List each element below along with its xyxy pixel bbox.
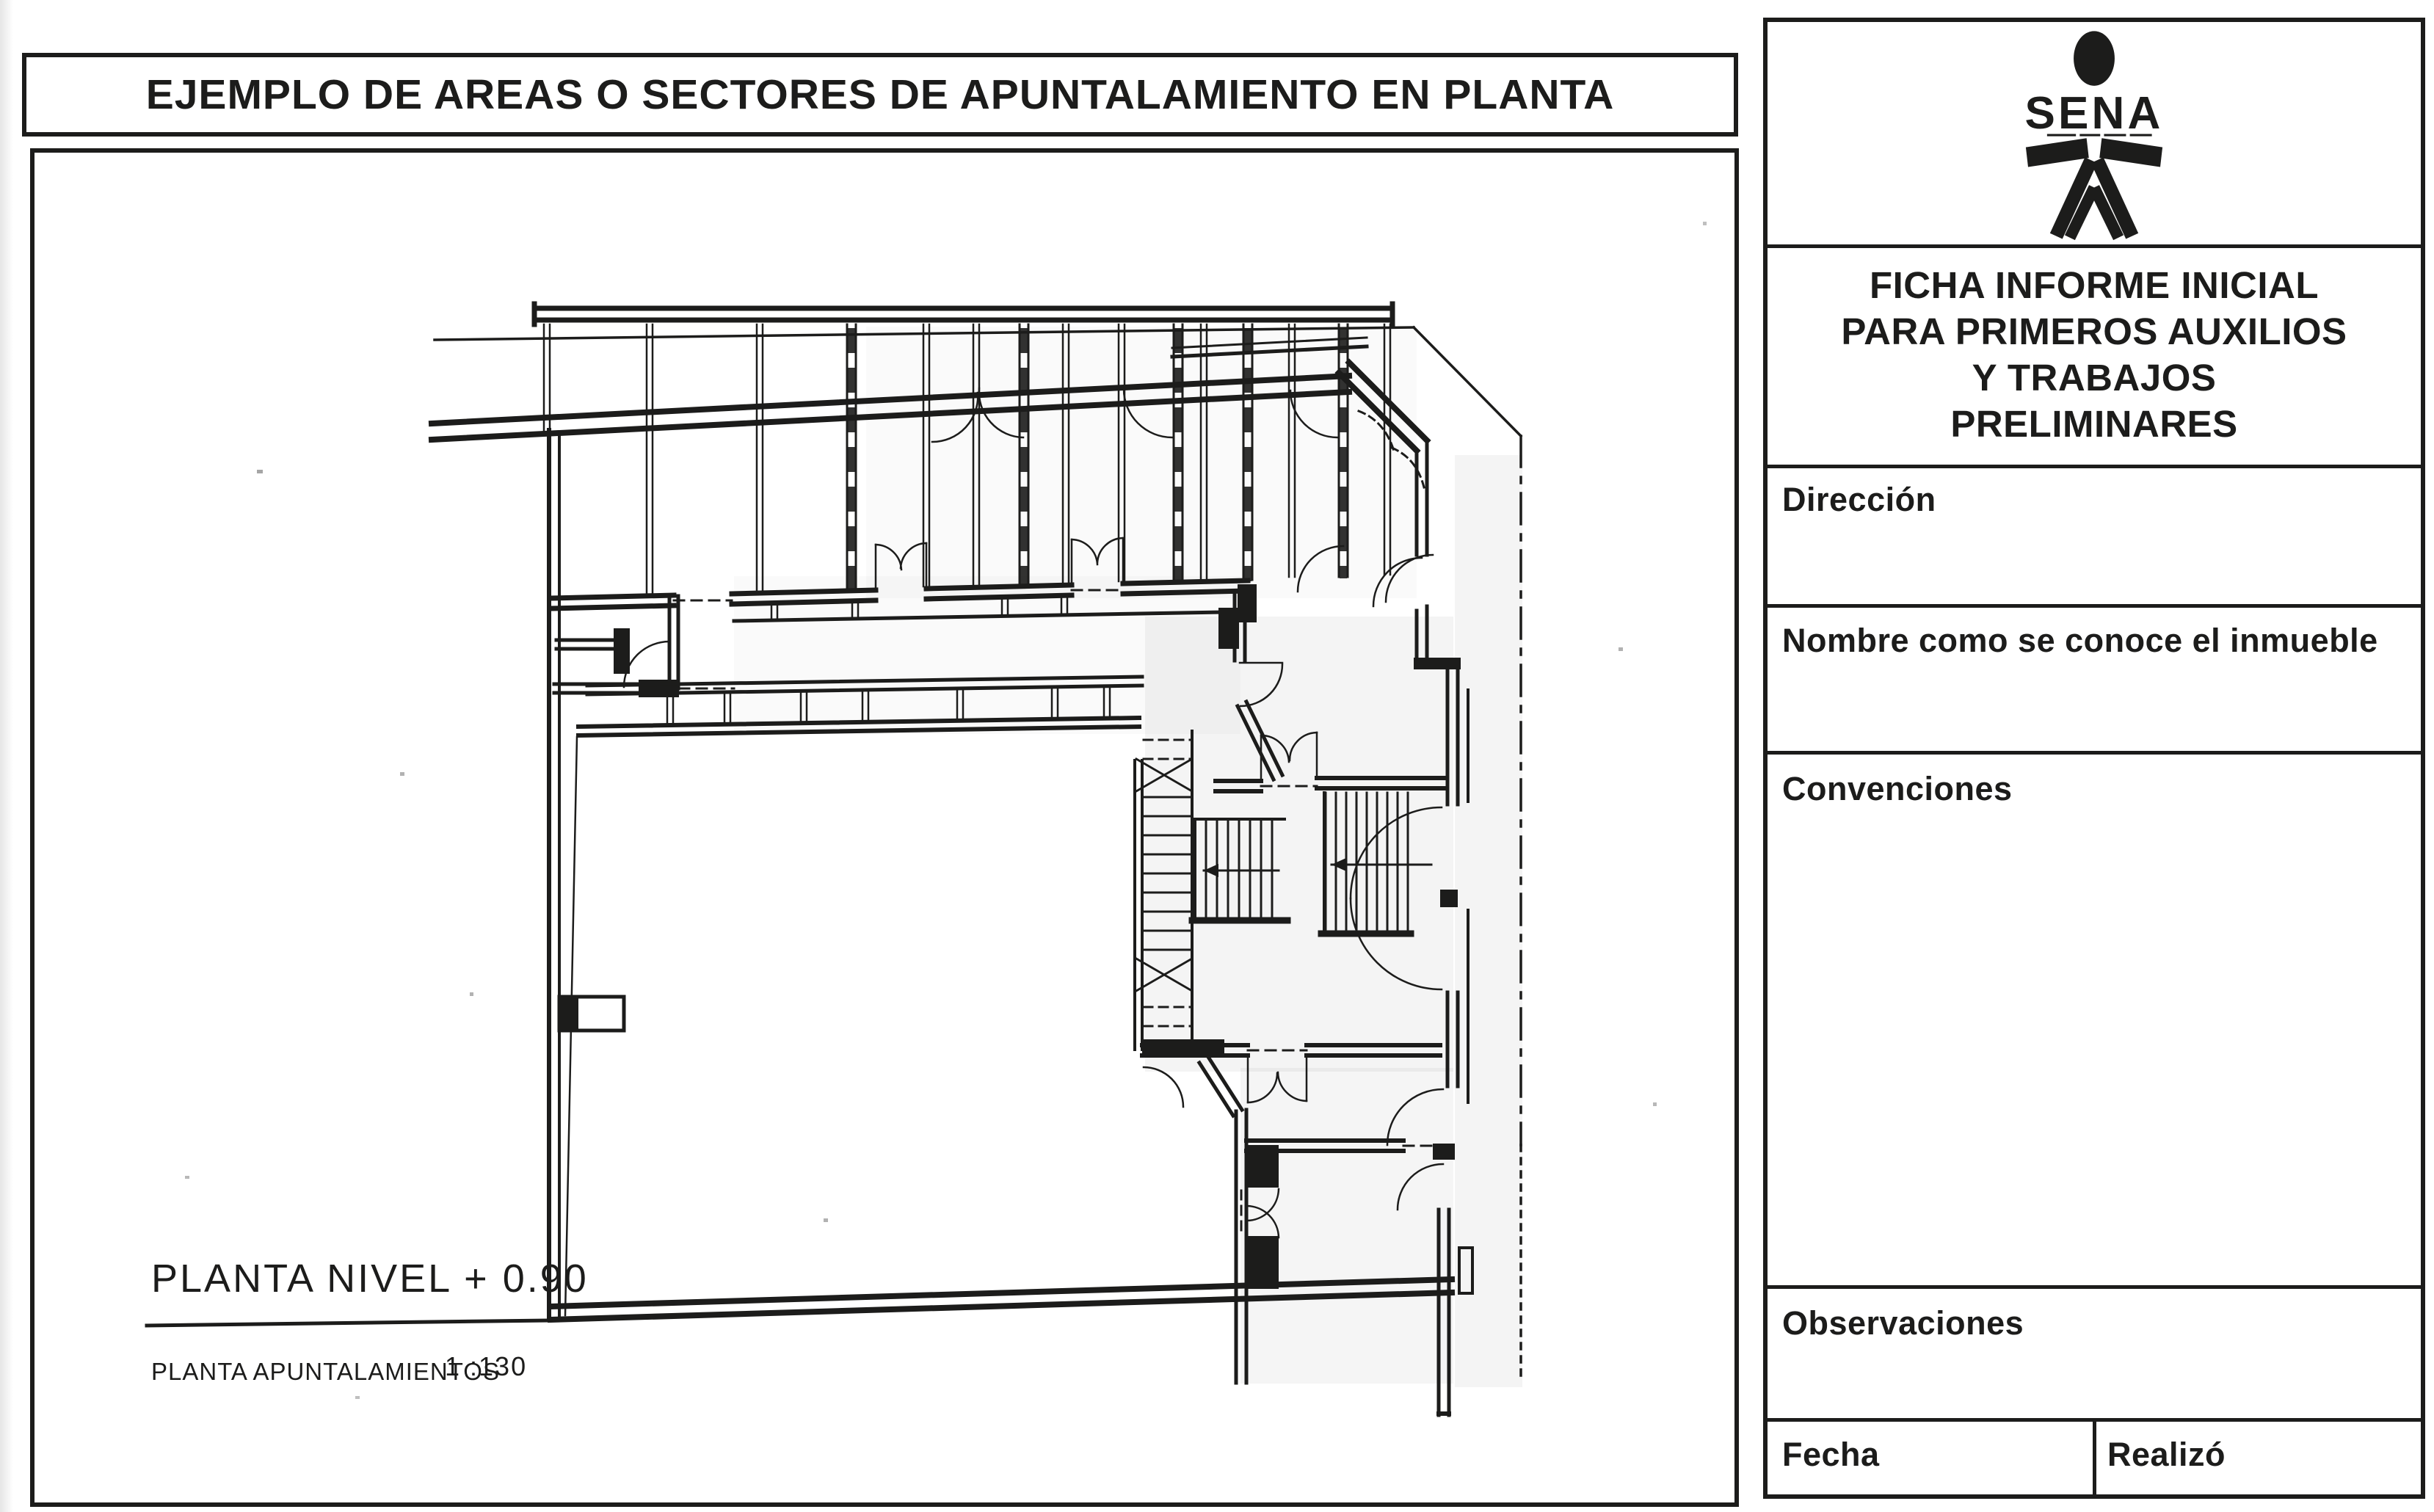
plan-level-label: PLANTA NIVEL + 0.90 — [151, 1257, 589, 1301]
plan-scale: 1 :130 — [445, 1351, 527, 1381]
form-title-line: FICHA INFORME INICIAL — [1870, 262, 2319, 308]
divider-vertical — [2093, 1418, 2096, 1494]
plan-labels: PLANTA NIVEL + 0.90 PLANTA APUNTALAMIENT… — [147, 1257, 589, 1385]
logo-text: SENA — [2025, 87, 2164, 138]
field-direccion: Dirección — [1782, 481, 1936, 519]
field-convenciones: Convenciones — [1782, 770, 2013, 808]
divider — [1768, 465, 2421, 468]
form-title-line: PARA PRIMEROS AUXILIOS — [1841, 308, 2347, 355]
field-nombre: Nombre como se conoce el inmueble — [1782, 622, 2378, 660]
big-room — [559, 997, 624, 1031]
logo-box: SENA — [1768, 22, 2421, 244]
form-title: FICHA INFORME INICIAL PARA PRIMEROS AUXI… — [1768, 244, 2421, 465]
shoring-beam — [534, 304, 1392, 324]
field-fecha: Fecha — [1782, 1436, 1880, 1474]
divider — [1768, 1285, 2421, 1289]
field-realizo: Realizó — [2107, 1436, 2226, 1474]
field-observaciones: Observaciones — [1782, 1304, 2024, 1342]
info-panel: SENA FICHA INFORME INICIAL PARA PRIMEROS… — [1763, 18, 2425, 1499]
left-exterior-wall — [549, 430, 577, 1320]
form-title-line: PRELIMINARES — [1950, 401, 2237, 447]
divider — [1768, 751, 2421, 755]
center-stair — [1192, 819, 1287, 920]
scanned-form-sheet: EJEMPLO DE AREAS O SECTORES DE APUNTALAM… — [0, 0, 2434, 1512]
form-title-line: Y TRABAJOS — [1972, 355, 2217, 401]
sena-person-icon: SENA — [1973, 23, 2215, 244]
divider — [1768, 604, 2421, 608]
